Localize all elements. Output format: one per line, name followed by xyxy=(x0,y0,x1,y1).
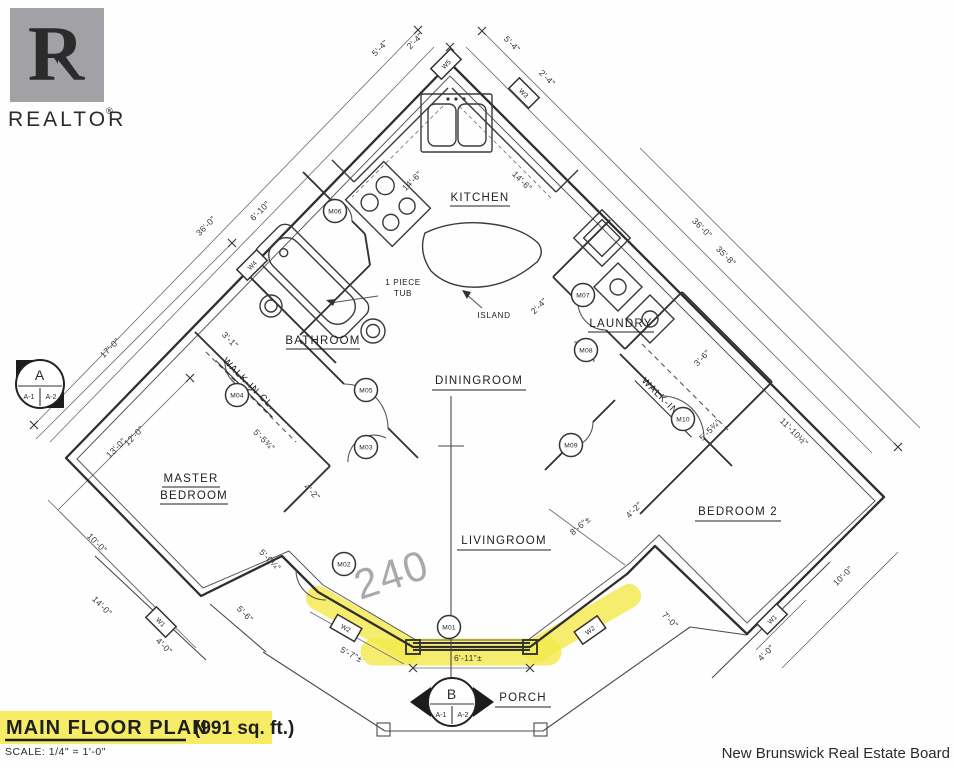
dimension-label: 5'-4" xyxy=(370,38,390,58)
room-label-diningroom: DININGROOM xyxy=(435,375,523,387)
room-label-island: ISLAND xyxy=(477,311,510,320)
dimension-label: 6'-10" xyxy=(248,199,272,223)
svg-text:M10: M10 xyxy=(676,416,690,423)
dimension-label: 10'-0" xyxy=(831,564,855,588)
dimension-label: 4'-0" xyxy=(154,636,174,656)
section-marker-b-sub2: A-2 xyxy=(458,712,469,719)
tub-note-line2: TUB xyxy=(394,289,412,298)
door-tag-m09: M09 xyxy=(560,434,583,457)
fridge xyxy=(574,210,631,267)
dimension-label: 2'-4" xyxy=(529,296,549,316)
plan-scale: SCALE: 1/4" = 1'-0" xyxy=(5,746,106,758)
room-label-laundry: LAUNDRY xyxy=(589,318,652,330)
door-tag-m03: M03 xyxy=(355,436,378,459)
dimension-label: 4'-0" xyxy=(756,643,776,663)
exterior-walls xyxy=(66,63,884,647)
section-marker-a-sub2: A-2 xyxy=(46,394,57,401)
dimension-label: 5'-0¼" xyxy=(257,547,283,573)
dimension-label: 5'-5¾" xyxy=(251,427,277,453)
room-label-bedroom2: BEDROOM 2 xyxy=(698,506,778,518)
window-tag-w1-left: W1 xyxy=(146,607,176,637)
svg-text:M09: M09 xyxy=(564,442,578,449)
room-label-kitchen: KITCHEN xyxy=(451,192,510,204)
floor-plan-canvas: KITCHEN BATHROOM LAUNDRY DININGROOM LIVI… xyxy=(0,0,954,768)
room-label-master-line1: MASTER xyxy=(163,473,218,485)
room-label-porch: PORCH xyxy=(499,692,547,704)
svg-text:M07: M07 xyxy=(576,292,590,299)
dimension-label: 14'-6" xyxy=(510,169,534,193)
door-tag-m06: M06 xyxy=(324,200,347,223)
window-tags: W5 W3 W4 W1 W2 W2 W1 xyxy=(146,49,787,644)
svg-text:WALK-IN CL.: WALK-IN CL. xyxy=(220,356,277,413)
dimension-label: 14'-0" xyxy=(90,594,114,618)
attribution-text: New Brunswick Real Estate Board xyxy=(722,745,950,762)
section-marker-a: A A-1 A-2 xyxy=(16,360,64,408)
scanned-floor-plan-page: KITCHEN BATHROOM LAUNDRY DININGROOM LIVI… xyxy=(0,0,954,768)
dimension-label: 3'-1" xyxy=(220,330,240,350)
svg-text:M03: M03 xyxy=(359,444,373,451)
room-label-walkin-left: WALK-IN CL. xyxy=(216,352,281,417)
realtor-logo: R REALTOR ® xyxy=(8,8,126,131)
room-label-master-line2: BEDROOM xyxy=(160,490,228,502)
room-label-bathroom: BATHROOM xyxy=(285,335,360,347)
plan-title: MAIN FLOOR PLAN xyxy=(6,717,208,739)
dimension-label: 2'-4" xyxy=(537,68,557,88)
pencil-annotation: 240 xyxy=(348,540,435,608)
room-label-livingroom: LIVINGROOM xyxy=(461,535,546,547)
window-tag-w3: W3 xyxy=(509,78,539,108)
kitchen-sink xyxy=(421,94,492,152)
section-marker-b-label: B xyxy=(447,686,457,702)
tub-note-line1: 1 PIECE xyxy=(385,278,421,287)
dimension-label: 10'-0" xyxy=(85,531,109,555)
svg-text:M08: M08 xyxy=(579,347,593,354)
dimension-ticks xyxy=(30,26,902,672)
dimension-label: 36'-0" xyxy=(690,216,714,240)
section-marker-a-sub1: A-1 xyxy=(24,394,35,401)
svg-text:M05: M05 xyxy=(359,387,373,394)
section-marker-b: B A-1 A-2 xyxy=(410,678,494,726)
svg-text:M01: M01 xyxy=(442,624,456,631)
dimension-lines xyxy=(30,26,920,672)
door-tag-m10: M10 xyxy=(672,408,695,431)
kitchen-island xyxy=(423,223,542,287)
door-tag-m08: M08 xyxy=(575,339,598,362)
plan-area: (991 sq. ft.) xyxy=(194,718,294,739)
section-marker-b-sub1: A-1 xyxy=(436,712,447,719)
section-marker-a-label: A xyxy=(35,367,45,383)
dimension-label: 7'-0" xyxy=(660,610,680,630)
title-block: MAIN FLOOR PLAN (991 sq. ft.) SCALE: 1/4… xyxy=(5,717,294,758)
door-tag-m04: M04 xyxy=(226,384,249,407)
dimension-label: 36'-0" xyxy=(194,214,218,238)
door-tag-m01: M01 xyxy=(438,616,461,639)
door-tag-m07: M07 xyxy=(572,284,595,307)
dimension-label: 5'-4" xyxy=(502,34,522,54)
closet-rod-left xyxy=(206,352,296,442)
dimension-label: 4'-2" xyxy=(624,500,644,520)
dimension-label: 35'-8" xyxy=(714,244,738,268)
fixtures xyxy=(206,88,728,600)
window-tag-w5: W5 xyxy=(431,49,461,79)
svg-text:M04: M04 xyxy=(230,392,244,399)
dimension-label: 3'-6" xyxy=(692,348,712,368)
washer xyxy=(594,263,642,311)
bathroom-sink xyxy=(361,319,385,343)
dimension-labels: 5'-4" 2'-4" 5'-4" 2'-4" 14'-6" 14'-6" 6'… xyxy=(85,31,855,665)
dimension-label: 12'-0" xyxy=(122,424,146,448)
dimension-label: 5'-7"± xyxy=(339,644,365,664)
registered-mark-icon: ® xyxy=(106,106,113,116)
dimension-label: 5'-6" xyxy=(235,604,255,624)
dimension-label: 6'-11"± xyxy=(454,653,482,663)
door-tag-m05: M05 xyxy=(355,379,378,402)
svg-text:M06: M06 xyxy=(328,208,342,215)
dimension-label: 8'-6"± xyxy=(568,514,593,537)
